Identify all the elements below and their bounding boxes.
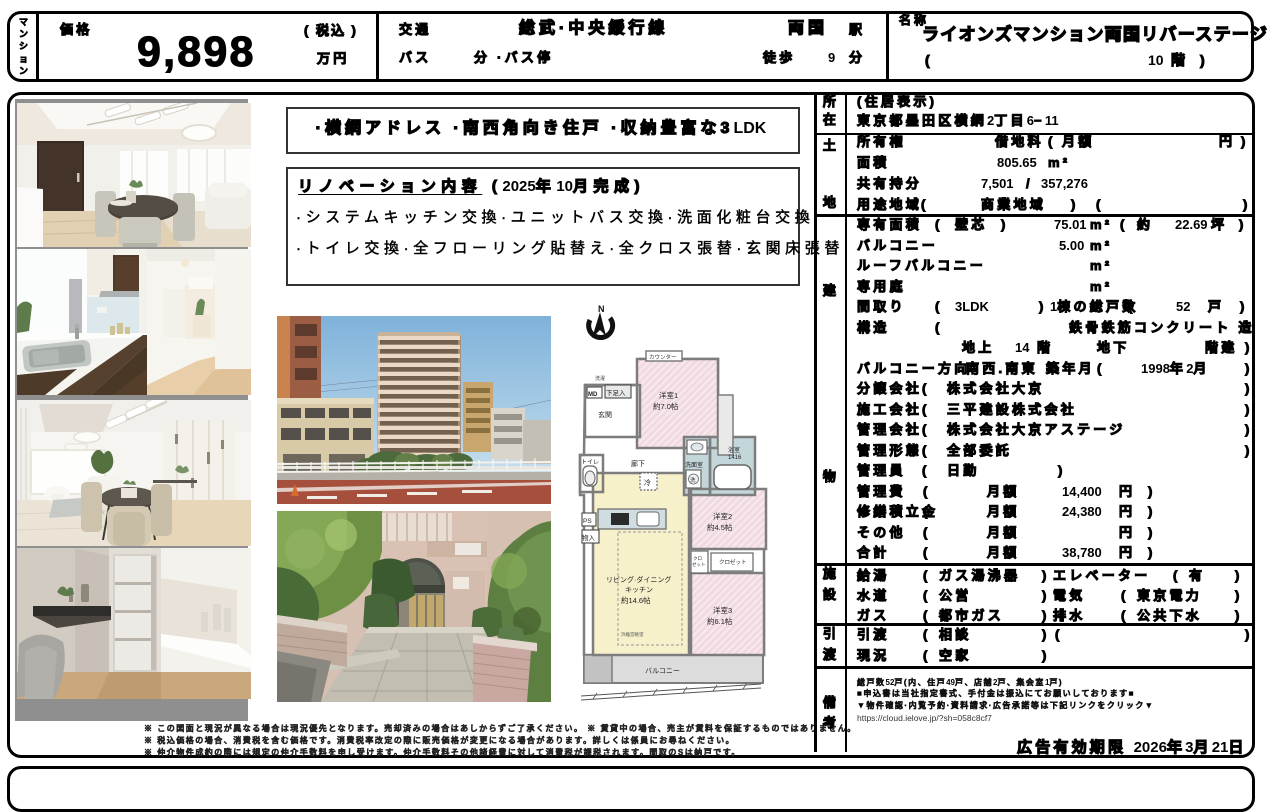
svg-text:玄関: 玄関 [598, 410, 612, 419]
svg-text:洗濯: 洗濯 [595, 375, 605, 382]
svg-text:クロゼット: クロゼット [719, 558, 747, 566]
svg-text:洗面室: 洗面室 [685, 461, 703, 469]
svg-text:N: N [598, 304, 605, 314]
svg-text:MD: MD [588, 392, 598, 398]
svg-text:リビング·ダイニング: リビング·ダイニング [606, 575, 671, 584]
svg-text:約7.0帖: 約7.0帖 [653, 401, 679, 411]
svg-text:約14.6帖: 約14.6帖 [621, 595, 651, 605]
svg-text:バルコニー: バルコニー [645, 667, 680, 675]
svg-text:物入: 物入 [582, 533, 596, 542]
svg-text:洗: 洗 [690, 476, 696, 484]
svg-text:浜離宮眺望: 浜離宮眺望 [621, 631, 644, 638]
svg-text:約4.5帖: 約4.5帖 [707, 522, 733, 532]
svg-text:1416: 1416 [728, 455, 742, 461]
svg-text:キッチン: キッチン [625, 586, 653, 594]
svg-text:約6.1帖: 約6.1帖 [707, 616, 733, 626]
svg-text:廊下: 廊下 [631, 459, 645, 468]
svg-text:ゼット: ゼット [692, 561, 706, 567]
svg-text:PS: PS [583, 518, 592, 525]
svg-text:カウンター: カウンター [649, 353, 677, 361]
svg-text:下足入: 下足入 [606, 389, 626, 397]
svg-text:トイレ: トイレ [581, 460, 599, 466]
svg-text:冷: 冷 [644, 478, 651, 487]
svg-text:洋室3: 洋室3 [713, 605, 732, 615]
svg-text:洋室2: 洋室2 [713, 511, 732, 521]
svg-text:洋室1: 洋室1 [659, 390, 678, 400]
svg-text:浴室: 浴室 [728, 446, 740, 454]
